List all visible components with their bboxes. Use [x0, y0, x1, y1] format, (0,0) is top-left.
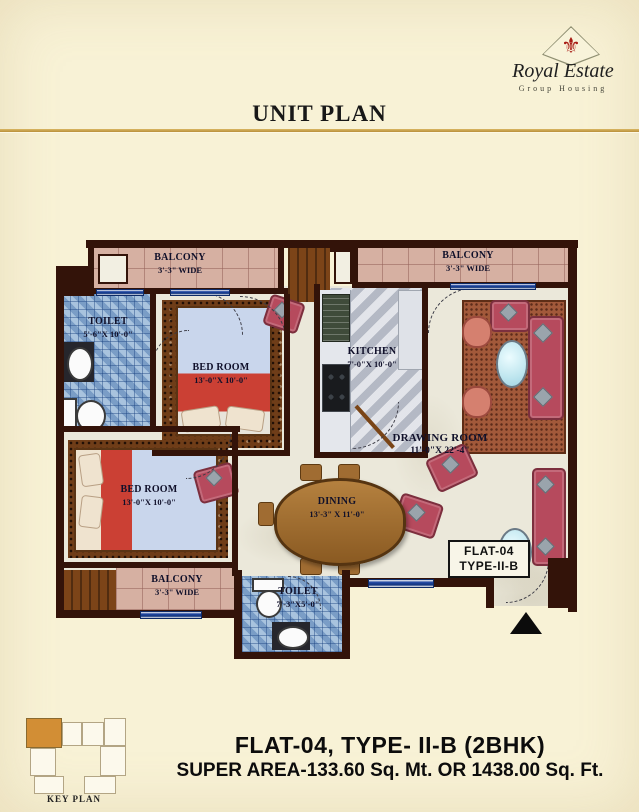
- key-plan-label: KEY PLAN: [18, 794, 130, 804]
- balcony-bottom-label: BALCONY 3'-3" WIDE: [118, 574, 236, 597]
- footer-super-area: SUPER AREA-133.60 Sq. Mt. OR 1438.00 Sq.…: [145, 760, 635, 782]
- window: [368, 579, 434, 588]
- footer-flat-title: FLAT-04, TYPE- II-B (2BHK): [145, 732, 635, 759]
- wall: [152, 450, 290, 456]
- window: [140, 611, 202, 619]
- sink: [277, 626, 309, 649]
- wall: [56, 426, 240, 432]
- key-plan-unit: [30, 748, 56, 776]
- toilet-top-label: TOILET 5'-6"X 10'-0": [64, 316, 152, 339]
- flat-tag-line1: FLAT-04: [452, 544, 526, 559]
- wall: [150, 294, 156, 432]
- wall: [56, 562, 238, 568]
- bedroom-top-label: BED ROOM 13'-0"X 10'-0": [158, 362, 284, 385]
- shaft-top-center: [334, 250, 352, 284]
- page-title: UNIT PLAN: [0, 101, 639, 127]
- entry-arrow-icon: [510, 612, 542, 634]
- key-plan-highlighted-unit: [26, 718, 62, 748]
- key-plan-unit: [84, 776, 116, 794]
- key-plan-unit: [34, 776, 64, 794]
- window: [170, 289, 230, 296]
- wall: [548, 558, 574, 608]
- wall: [330, 244, 356, 252]
- flat-tag-line2: TYPE-II-B: [452, 559, 526, 574]
- bedroom-left-label: BED ROOM 13'-0"X 10'-0": [74, 484, 224, 507]
- wall: [486, 578, 494, 608]
- armchair: [462, 386, 492, 418]
- wall: [314, 284, 320, 458]
- refrigerator: [322, 294, 350, 342]
- key-plan-unit: [62, 722, 82, 746]
- kitchen-label: KITCHEN 7'-0"X 10'-0": [322, 346, 422, 369]
- unit-plan-page: ⚜ Royal Estate Group Housing UNIT PLAN: [0, 0, 639, 812]
- wall: [234, 652, 350, 659]
- window: [96, 289, 144, 296]
- wall: [278, 246, 284, 292]
- balcony-top-right-label: BALCONY 3'-3" WIDE: [408, 250, 528, 273]
- dining-chair: [258, 502, 274, 526]
- wall: [232, 426, 238, 576]
- key-plan-unit: [100, 746, 126, 776]
- title-rule: [0, 129, 639, 133]
- wall: [284, 294, 290, 454]
- sink: [67, 347, 93, 381]
- bed-left-pillow: [78, 453, 104, 488]
- dining-label: DINING 13'-3" X 11'-0": [284, 496, 390, 519]
- toilet-bottom-label: TOILET 7'-3"X5'-0": [254, 586, 342, 609]
- balcony-top-left-label: BALCONY 3'-3" WIDE: [120, 252, 240, 275]
- coffee-table: [496, 340, 528, 388]
- wall: [568, 240, 577, 612]
- drawing-room-label: DRAWING ROOM 11'-0"X 22'-4": [370, 432, 510, 457]
- stove: [322, 364, 350, 412]
- key-plan-unit: [82, 722, 104, 746]
- brand-tagline: Group Housing: [496, 84, 630, 93]
- dining-chair: [300, 464, 322, 481]
- wardrobe-bottom-left: [62, 570, 116, 610]
- dining-table: [274, 478, 406, 566]
- flat-tag: FLAT-04 TYPE-II-B: [448, 540, 530, 578]
- wall: [88, 246, 94, 292]
- window: [450, 283, 536, 290]
- key-plan-unit: [104, 718, 126, 746]
- fleur-glyph: ⚜: [542, 33, 600, 59]
- brand-name: Royal Estate: [496, 60, 630, 83]
